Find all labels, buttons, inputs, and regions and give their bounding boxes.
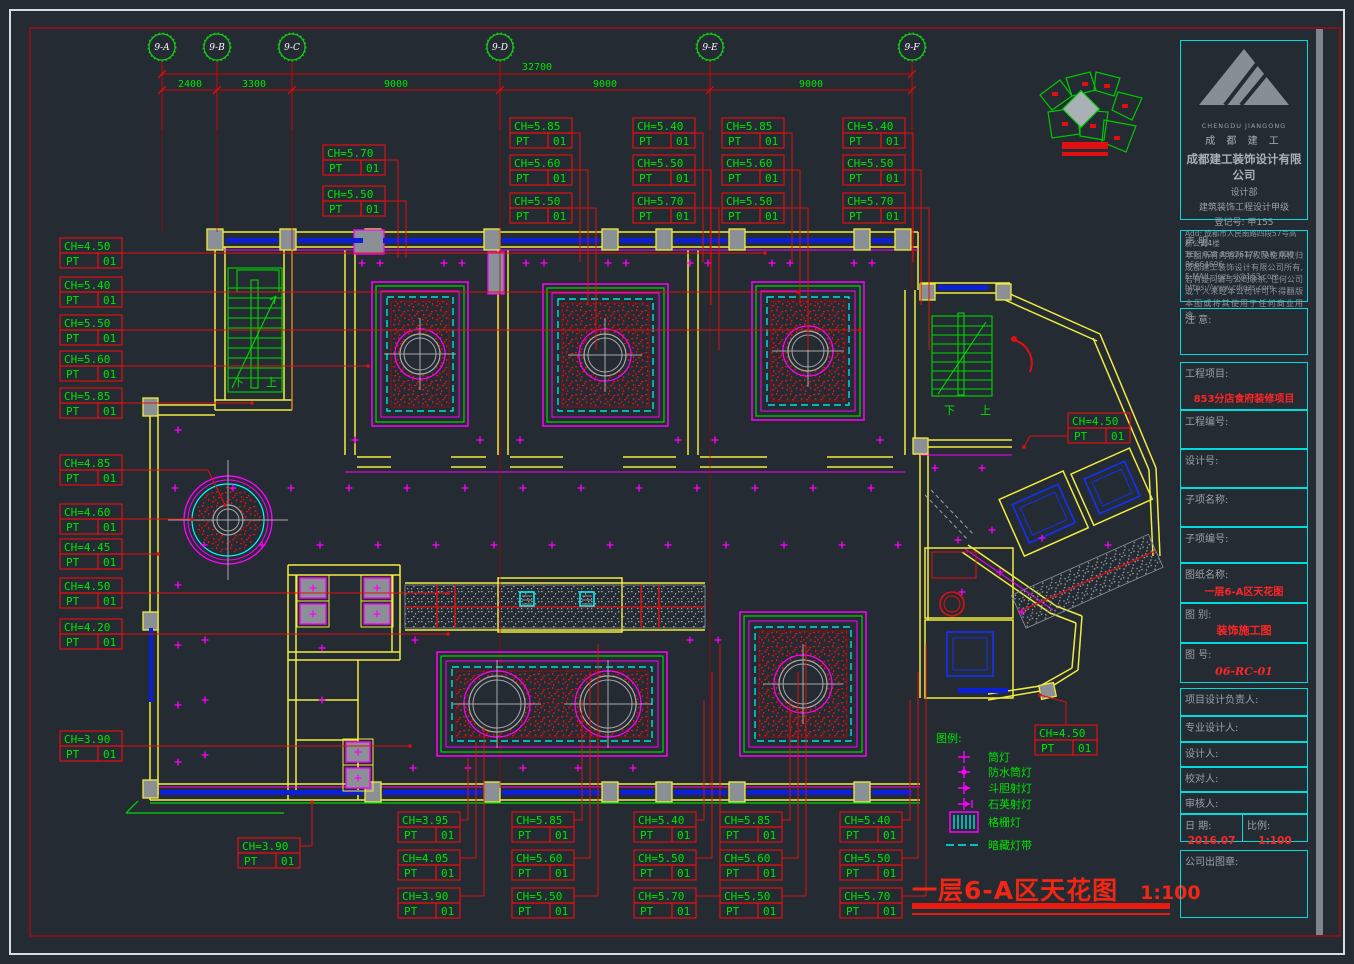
field-label: 图纸名称:	[1185, 570, 1228, 581]
dome-ceiling	[168, 460, 288, 580]
downlight-mark	[877, 437, 884, 444]
quartz-spotlight-icon	[958, 798, 972, 810]
field-label: 工程编号:	[1185, 417, 1228, 428]
svg-text:01: 01	[883, 905, 896, 918]
company-logo-cn: 成 都 建 工	[1185, 132, 1303, 147]
leader-line	[696, 700, 704, 820]
ceiling-height-label: CH=4.50PT01	[1068, 413, 1130, 443]
svg-text:CH=5.40: CH=5.40	[847, 120, 893, 133]
svg-text:01: 01	[886, 135, 899, 148]
ceiling-height-label: CH=5.60PT01	[510, 155, 572, 185]
svg-text:PT: PT	[516, 210, 530, 223]
svg-text:CH=5.85: CH=5.85	[724, 814, 770, 827]
svg-text:PT: PT	[518, 905, 532, 918]
svg-text:PT: PT	[66, 472, 80, 485]
svg-text:PT: PT	[66, 521, 80, 534]
field-label: 子项名称:	[1185, 495, 1228, 506]
ceiling-height-label: CH=5.50PT01	[633, 155, 695, 185]
downlight-mark	[769, 260, 776, 267]
leader-line	[460, 758, 468, 820]
statement-label: 声 明:	[1185, 237, 1212, 248]
grid-bubble: 9-E	[697, 34, 724, 61]
svg-text:CH=4.45: CH=4.45	[64, 541, 110, 554]
date-label: 日 期:	[1185, 821, 1212, 832]
svg-text:PT: PT	[66, 368, 80, 381]
svg-text:PT: PT	[66, 556, 80, 569]
svg-text:CH=5.60: CH=5.60	[64, 353, 110, 366]
ceiling-height-label: CH=5.70PT01	[323, 145, 385, 175]
ceiling-height-label: CH=5.40PT01	[843, 118, 905, 148]
svg-text:筒灯: 筒灯	[988, 750, 1010, 764]
downlight-mark	[520, 765, 527, 772]
svg-text:01: 01	[103, 255, 116, 268]
downlight-mark	[715, 637, 722, 644]
adjustable-spotlight-icon	[958, 782, 970, 794]
segment-dimension: 3300	[242, 79, 266, 90]
svg-text:CH=4.05: CH=4.05	[402, 852, 448, 865]
svg-text:CH=5.50: CH=5.50	[516, 890, 562, 903]
svg-text:上: 上	[266, 376, 277, 389]
ceiling-height-label: CH=4.45PT01	[60, 539, 122, 569]
svg-text:CH=5.40: CH=5.40	[844, 814, 890, 827]
svg-text:CH=5.85: CH=5.85	[64, 390, 110, 403]
sign-row-chief: 项目设计负责人:	[1180, 688, 1308, 716]
downlight-mark	[575, 765, 582, 772]
svg-text:CH=3.95: CH=3.95	[402, 814, 448, 827]
overall-dimension: 32700	[522, 62, 552, 73]
svg-text:PT: PT	[639, 135, 653, 148]
svg-text:01: 01	[886, 210, 899, 223]
date-cell: 日 期: 2016.07	[1181, 815, 1243, 841]
ceiling-height-label: CH=4.20PT01	[60, 619, 122, 649]
field-value: 06-RC-01	[1181, 665, 1307, 678]
svg-text:PT: PT	[1074, 430, 1088, 443]
field-sheet-category: 图 别: 装饰施工图	[1180, 603, 1308, 643]
stamp-box: 公司出图章:	[1180, 850, 1308, 918]
ceiling-height-label: CH=5.40PT01	[840, 812, 902, 842]
svg-text:斗胆射灯: 斗胆射灯	[988, 781, 1032, 795]
svg-text:PT: PT	[516, 172, 530, 185]
svg-text:CH=5.60: CH=5.60	[726, 157, 772, 170]
downlight-mark	[989, 527, 996, 534]
grid-bubble: 9-A	[149, 34, 176, 61]
svg-text:PT: PT	[66, 748, 80, 761]
ceiling-height-label: CH=5.50PT01	[60, 315, 122, 345]
sign-label: 设计人:	[1185, 749, 1218, 760]
ceiling-height-label: CH=3.90PT01	[398, 888, 460, 918]
sign-label: 专业设计人:	[1185, 723, 1238, 734]
svg-text:01: 01	[553, 210, 566, 223]
leader-line	[385, 201, 406, 258]
svg-text:01: 01	[883, 829, 896, 842]
svg-text:PT: PT	[728, 135, 742, 148]
downlight-mark	[375, 542, 382, 549]
downlight-mark	[433, 542, 440, 549]
drawing-sheet: 3270024003300900090009000 9-A9-B9-C9-D9-…	[0, 0, 1354, 964]
company-logo-en: CHENGDU JIANGONG	[1185, 122, 1303, 130]
downlight-mark	[202, 752, 209, 759]
segment-dimension: 9000	[384, 79, 408, 90]
svg-text:01: 01	[281, 855, 294, 868]
key-map	[1040, 72, 1142, 156]
downlight-mark	[319, 645, 326, 652]
svg-text:9-E: 9-E	[702, 43, 718, 53]
downlight-mark	[623, 260, 630, 267]
downlight-mark	[705, 260, 712, 267]
leader-line	[385, 160, 398, 258]
downlight-mark	[346, 485, 353, 492]
grid-bubble: 9-F	[899, 34, 926, 61]
svg-text:PT: PT	[66, 595, 80, 608]
downlight-mark	[955, 537, 962, 544]
svg-text:CH=4.50: CH=4.50	[64, 580, 110, 593]
svg-text:01: 01	[441, 867, 454, 880]
ceiling-height-label: CH=5.70PT01	[634, 888, 696, 918]
downlight-mark	[410, 765, 417, 772]
ceiling-height-label: CH=4.60PT01	[60, 504, 122, 534]
svg-text:CH=5.70: CH=5.70	[844, 890, 890, 903]
field-design-no: 设计号:	[1180, 449, 1308, 488]
ceiling-height-label: CH=5.85PT01	[512, 812, 574, 842]
svg-text:01: 01	[677, 867, 690, 880]
svg-text:01: 01	[677, 829, 690, 842]
downlight-mark	[810, 485, 817, 492]
field-project: 工程项目: 853分店食府装修项目	[1180, 362, 1308, 410]
svg-text:CH=5.50: CH=5.50	[637, 157, 683, 170]
svg-text:PT: PT	[66, 636, 80, 649]
downlight-mark	[459, 260, 466, 267]
cove-lights	[297, 575, 393, 791]
svg-text:CH=5.50: CH=5.50	[514, 195, 560, 208]
svg-text:01: 01	[763, 905, 776, 918]
downlight-mark	[781, 542, 788, 549]
svg-text:CH=5.85: CH=5.85	[726, 120, 772, 133]
svg-text:01: 01	[677, 905, 690, 918]
company-logo-triangle	[1185, 43, 1303, 117]
svg-text:9-C: 9-C	[284, 43, 300, 53]
ceiling-height-label: CH=5.50PT01	[843, 155, 905, 185]
downlight-mark	[319, 697, 326, 704]
field-label: 工程项目:	[1185, 369, 1228, 380]
svg-text:格栅灯: 格栅灯	[988, 815, 1021, 829]
segment-dimension: 2400	[178, 79, 202, 90]
svg-text:CH=4.50: CH=4.50	[64, 240, 110, 253]
downlight-mark	[605, 260, 612, 267]
svg-text:PT: PT	[846, 905, 860, 918]
svg-text:PT: PT	[640, 829, 654, 842]
svg-text:PT: PT	[849, 210, 863, 223]
svg-text:PT: PT	[329, 162, 343, 175]
downlight-mark	[694, 485, 701, 492]
svg-text:PT: PT	[404, 829, 418, 842]
svg-text:CH=3.90: CH=3.90	[64, 733, 110, 746]
ceiling-height-label: CH=4.50PT01	[1035, 725, 1097, 755]
grid-bubble: 9-C	[279, 34, 306, 61]
field-label: 图 号:	[1185, 650, 1212, 661]
downlight-mark	[441, 260, 448, 267]
svg-text:01: 01	[553, 172, 566, 185]
svg-text:01: 01	[441, 905, 454, 918]
downlight-mark	[868, 485, 875, 492]
legend-layer: 图例:筒灯防水筒灯斗胆射灯石英射灯格栅灯暗藏灯带	[936, 731, 1032, 852]
svg-text:PT: PT	[728, 172, 742, 185]
leader-line	[300, 802, 312, 846]
svg-text:PT: PT	[516, 135, 530, 148]
statement-box: 声 明: 本图所有内容所有权及使用权归成都建工装饰设计有限公司所有, 若有疑问请…	[1180, 230, 1308, 302]
downlight-mark	[288, 485, 295, 492]
ceiling-height-label: CH=5.85PT01	[722, 118, 784, 148]
field-value: 853分店食府装修项目	[1181, 390, 1307, 405]
svg-text:PT: PT	[726, 867, 740, 880]
svg-text:PT: PT	[640, 867, 654, 880]
note-label: 注 意:	[1185, 315, 1212, 326]
svg-text:01: 01	[103, 636, 116, 649]
svg-text:PT: PT	[66, 294, 80, 307]
svg-text:01: 01	[103, 332, 116, 345]
svg-text:上: 上	[980, 404, 991, 417]
downlight-mark	[462, 485, 469, 492]
title-underline-thin	[912, 913, 1170, 915]
svg-text:01: 01	[103, 748, 116, 761]
svg-text:CH=5.85: CH=5.85	[516, 814, 562, 827]
svg-text:PT: PT	[846, 867, 860, 880]
grid-bubble: 9-D	[487, 34, 514, 61]
svg-text:01: 01	[555, 905, 568, 918]
sign-row-auditor: 审核人:	[1180, 792, 1308, 814]
field-subitem-no: 子项编号:	[1180, 527, 1308, 563]
field-label: 设计号:	[1185, 456, 1218, 467]
svg-text:PT: PT	[66, 405, 80, 418]
downlight-mark	[317, 542, 324, 549]
svg-text:01: 01	[553, 135, 566, 148]
sign-label: 项目设计负责人:	[1185, 695, 1258, 706]
company-dept: 设计部	[1185, 185, 1303, 198]
field-project-no: 工程编号:	[1180, 410, 1308, 449]
svg-text:PT: PT	[726, 829, 740, 842]
downlight-mark	[869, 260, 876, 267]
company-logo-box: CHENGDU JIANGONG 成 都 建 工 成都建工装饰设计有限公司 设计…	[1180, 40, 1308, 220]
stair-right	[932, 313, 992, 396]
svg-text:CH=5.50: CH=5.50	[327, 188, 373, 201]
ceiling-height-label: CH=4.05PT01	[398, 850, 460, 880]
svg-text:PT: PT	[726, 905, 740, 918]
svg-text:9-A: 9-A	[154, 43, 170, 53]
svg-text:9-F: 9-F	[904, 43, 920, 53]
leader-line	[902, 700, 910, 820]
ceiling-height-label: CH=3.95PT01	[398, 812, 460, 842]
downlight-mark	[675, 437, 682, 444]
company-reg-no: 登记号: 甲155	[1185, 215, 1303, 228]
downlight-mark	[723, 542, 730, 549]
svg-text:CH=5.50: CH=5.50	[847, 157, 893, 170]
ceiling-height-label: CH=5.70PT01	[633, 193, 695, 223]
downlight-mark	[636, 485, 643, 492]
svg-text:01: 01	[103, 368, 116, 381]
downlight-mark	[175, 427, 182, 434]
field-sheet-no: 图 号: 06-RC-01	[1180, 643, 1308, 683]
svg-text:01: 01	[765, 135, 778, 148]
svg-text:下: 下	[944, 404, 955, 417]
downlight-mark	[175, 582, 182, 589]
svg-text:CH=5.40: CH=5.40	[64, 279, 110, 292]
ceiling-height-label: CH=4.85PT01	[60, 455, 122, 485]
downlight-mark	[541, 260, 548, 267]
svg-text:CH=5.50: CH=5.50	[638, 852, 684, 865]
downlight-mark	[491, 542, 498, 549]
downlight-mark	[520, 485, 527, 492]
svg-text:PT: PT	[639, 172, 653, 185]
svg-text:CH=3.90: CH=3.90	[242, 840, 288, 853]
svg-text:CH=4.85: CH=4.85	[64, 457, 110, 470]
svg-text:CH=5.50: CH=5.50	[844, 852, 890, 865]
svg-text:PT: PT	[329, 203, 343, 216]
sign-label: 审核人:	[1185, 799, 1218, 810]
svg-text:CH=4.50: CH=4.50	[1039, 727, 1085, 740]
svg-text:CH=5.70: CH=5.70	[847, 195, 893, 208]
svg-text:CH=5.70: CH=5.70	[638, 890, 684, 903]
downlight-mark	[687, 637, 694, 644]
svg-text:PT: PT	[846, 829, 860, 842]
svg-text:01: 01	[765, 210, 778, 223]
stamp-label: 公司出图章:	[1185, 857, 1238, 868]
grid-bubble-layer: 9-A9-B9-C9-D9-E9-F	[149, 34, 926, 61]
scale-cell: 比例: 1:100	[1243, 815, 1307, 841]
svg-text:CH=5.70: CH=5.70	[637, 195, 683, 208]
ceiling-height-label: CH=5.50PT01	[720, 888, 782, 918]
downlight-mark	[175, 702, 182, 709]
sign-row-checker: 校对人:	[1180, 767, 1308, 792]
ceiling-height-label: CH=5.60PT01	[60, 351, 122, 381]
svg-text:01: 01	[1078, 742, 1091, 755]
field-value: 一层6-A区天花图	[1181, 583, 1307, 598]
svg-text:01: 01	[103, 405, 116, 418]
ceiling-height-label: CH=5.60PT01	[722, 155, 784, 185]
svg-text:PT: PT	[66, 332, 80, 345]
downlight-mark	[377, 260, 384, 267]
scale-label: 比例:	[1247, 821, 1270, 832]
company-qualification: 建筑装饰工程设计甲级	[1185, 200, 1303, 213]
downlight-mark	[839, 542, 846, 549]
svg-text:01: 01	[366, 162, 379, 175]
svg-text:CH=3.90: CH=3.90	[402, 890, 448, 903]
scale-value: 1:100	[1247, 835, 1303, 847]
downlight-mark	[932, 465, 939, 472]
cad-ceiling-plan-canvas: 3270024003300900090009000 9-A9-B9-C9-D9-…	[0, 0, 1354, 964]
ceiling-height-label: CH=5.60PT01	[512, 850, 574, 880]
downlight-mark	[851, 260, 858, 267]
svg-text:PT: PT	[404, 867, 418, 880]
drawing-title-text: 一层6-A区天花图	[912, 876, 1118, 905]
svg-text:01: 01	[676, 210, 689, 223]
svg-text:01: 01	[676, 135, 689, 148]
svg-text:CH=4.20: CH=4.20	[64, 621, 110, 634]
svg-text:01: 01	[1111, 430, 1124, 443]
coffer-ceiling-layer	[168, 282, 866, 756]
svg-text:CH=5.85: CH=5.85	[514, 120, 560, 133]
downlight-mark	[359, 260, 366, 267]
svg-text:01: 01	[103, 472, 116, 485]
segment-dimension: 9000	[799, 79, 823, 90]
downlight-mark	[578, 485, 585, 492]
ceiling-height-label: CH=5.40PT01	[634, 812, 696, 842]
svg-text:PT: PT	[1041, 742, 1055, 755]
downlight-mark	[665, 542, 672, 549]
svg-text:CH=5.70: CH=5.70	[327, 147, 373, 160]
ceiling-height-label: CH=5.50PT01	[510, 193, 572, 223]
svg-text:PT: PT	[849, 135, 863, 148]
svg-text:01: 01	[366, 203, 379, 216]
ceiling-height-label: CH=5.85PT01	[720, 812, 782, 842]
walls	[150, 232, 1160, 800]
downlight-mark	[712, 437, 719, 444]
sign-row-specialty: 专业设计人:	[1180, 716, 1308, 742]
grille-light-icon	[950, 812, 978, 832]
svg-text:01: 01	[883, 867, 896, 880]
svg-text:PT: PT	[404, 905, 418, 918]
svg-text:01: 01	[441, 829, 454, 842]
svg-text:01: 01	[765, 172, 778, 185]
svg-text:01: 01	[763, 829, 776, 842]
svg-text:9-B: 9-B	[209, 43, 225, 53]
ceiling-height-label: CH=5.40PT01	[60, 277, 122, 307]
downlight-mark	[752, 485, 759, 492]
downlight-mark	[175, 642, 182, 649]
svg-text:CH=5.50: CH=5.50	[724, 890, 770, 903]
ceiling-height-label: CH=5.50PT01	[840, 850, 902, 880]
ceiling-height-label: CH=5.70PT01	[843, 193, 905, 223]
date-scale-row: 日 期: 2016.07 比例: 1:100	[1180, 814, 1308, 842]
svg-text:PT: PT	[518, 867, 532, 880]
svg-text:CH=5.40: CH=5.40	[637, 120, 683, 133]
downlight-icon	[958, 751, 970, 763]
coffer-ceiling	[372, 282, 468, 426]
svg-text:01: 01	[676, 172, 689, 185]
downlight-mark	[352, 437, 359, 444]
ceiling-height-label: CH=5.50PT01	[722, 193, 784, 223]
svg-text:01: 01	[103, 521, 116, 534]
ceiling-height-label: CH=5.50PT01	[323, 186, 385, 216]
downlight-mark	[172, 485, 179, 492]
svg-text:CH=5.60: CH=5.60	[514, 157, 560, 170]
ceiling-height-label: CH=3.90PT01	[60, 731, 122, 761]
downlight-mark	[979, 465, 986, 472]
leader-line	[1024, 436, 1068, 447]
svg-text:防水筒灯: 防水筒灯	[988, 765, 1032, 779]
sign-row-designer: 设计人:	[1180, 742, 1308, 767]
waterproof-downlight-icon	[958, 766, 970, 778]
grid-bubble: 9-B	[204, 34, 231, 61]
svg-text:01: 01	[103, 595, 116, 608]
svg-text:9-D: 9-D	[492, 43, 508, 53]
coffer-ceiling	[437, 652, 667, 756]
svg-text:CH=5.60: CH=5.60	[724, 852, 770, 865]
svg-text:CH=4.50: CH=4.50	[1072, 415, 1118, 428]
svg-text:01: 01	[763, 867, 776, 880]
downlight-mark	[202, 637, 209, 644]
downlight-mark	[175, 759, 182, 766]
downlight-mark	[607, 542, 614, 549]
coffer-ceiling	[543, 284, 668, 426]
svg-text:CH=5.50: CH=5.50	[726, 195, 772, 208]
svg-text:01: 01	[103, 294, 116, 307]
svg-text:PT: PT	[728, 210, 742, 223]
drawing-title: 一层6-A区天花图1:100	[912, 871, 1174, 907]
svg-text:暗藏灯带: 暗藏灯带	[988, 838, 1032, 852]
field-subitem-name: 子项名称:	[1180, 488, 1308, 527]
segment-dimension: 9000	[593, 79, 617, 90]
downlight-mark	[1105, 542, 1112, 549]
ceiling-height-label: CH=4.50PT01	[60, 578, 122, 608]
